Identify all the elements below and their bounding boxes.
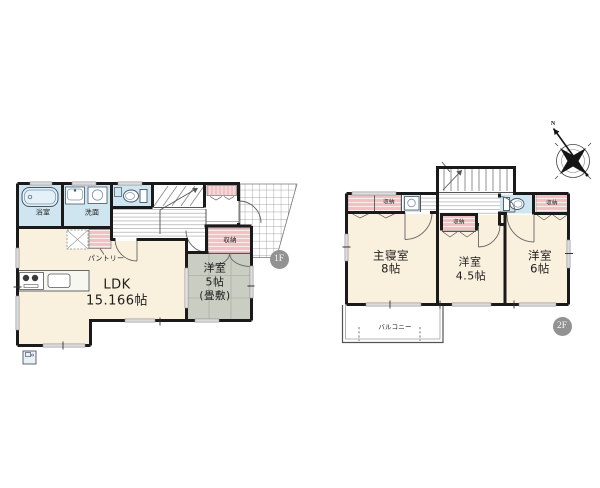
kitchen-sink-icon bbox=[48, 274, 70, 288]
bathroom-label: 浴室 bbox=[36, 210, 50, 217]
closet-2f-middle-label: 収納 bbox=[453, 220, 464, 226]
refrigerator-space bbox=[67, 230, 88, 249]
compass-icon bbox=[554, 129, 592, 180]
shoe-cabinet bbox=[207, 186, 237, 196]
west45-size-label: 4.5帖 bbox=[456, 271, 487, 282]
water-heater-icon bbox=[23, 351, 36, 364]
bathtub-icon bbox=[22, 188, 58, 207]
tatami-size-label: 5帖 bbox=[206, 277, 225, 288]
west45-name-label: 洋室 bbox=[459, 257, 482, 268]
toilet-icon-2f bbox=[504, 198, 525, 211]
floor1-badge: 1F bbox=[270, 250, 289, 269]
west6-size-label: 6帖 bbox=[530, 263, 550, 275]
vanity-sink-icon bbox=[66, 187, 85, 204]
tatami-name-label: 洋室 bbox=[204, 263, 227, 274]
entrance-step bbox=[206, 222, 239, 225]
closet-2f-top-left-label: 収納 bbox=[383, 200, 394, 206]
pantry-label: パントリー bbox=[88, 256, 124, 263]
west6-name-label: 洋室 bbox=[528, 250, 552, 262]
tatami-note-label: (畳敷) bbox=[199, 291, 230, 302]
washroom-label: 洗面 bbox=[85, 210, 99, 217]
ldk-name-label: LDK bbox=[103, 279, 130, 292]
floor1-plan bbox=[14, 182, 298, 364]
hallway-1f-floor bbox=[113, 209, 206, 240]
compass-north-label: N bbox=[551, 121, 555, 127]
washing-machine-icon bbox=[88, 187, 107, 204]
master-name-label: 主寝室 bbox=[373, 250, 409, 262]
washbasin-icon-2f bbox=[403, 195, 421, 213]
closet-door-marks-1f bbox=[210, 197, 234, 201]
kitchen-counter bbox=[18, 271, 89, 292]
closet-2f-top-right-label: 収納 bbox=[546, 201, 557, 207]
pantry-shelf bbox=[89, 230, 111, 249]
floorplan-drawing bbox=[0, 0, 600, 488]
stove-icon bbox=[20, 273, 44, 290]
balcony-label: バルコニー bbox=[378, 324, 411, 331]
closet-1f-label: 収納 bbox=[223, 237, 236, 244]
master-size-label: 8帖 bbox=[381, 263, 401, 275]
floor2-badge: 2F bbox=[553, 317, 572, 336]
ldk-size-label: 15.166帖 bbox=[86, 295, 148, 308]
floorplan-canvas: 浴室 洗面 パントリー 収納 LDK 15.166帖 洋室 5帖 (畳敷) 1F… bbox=[0, 0, 600, 488]
